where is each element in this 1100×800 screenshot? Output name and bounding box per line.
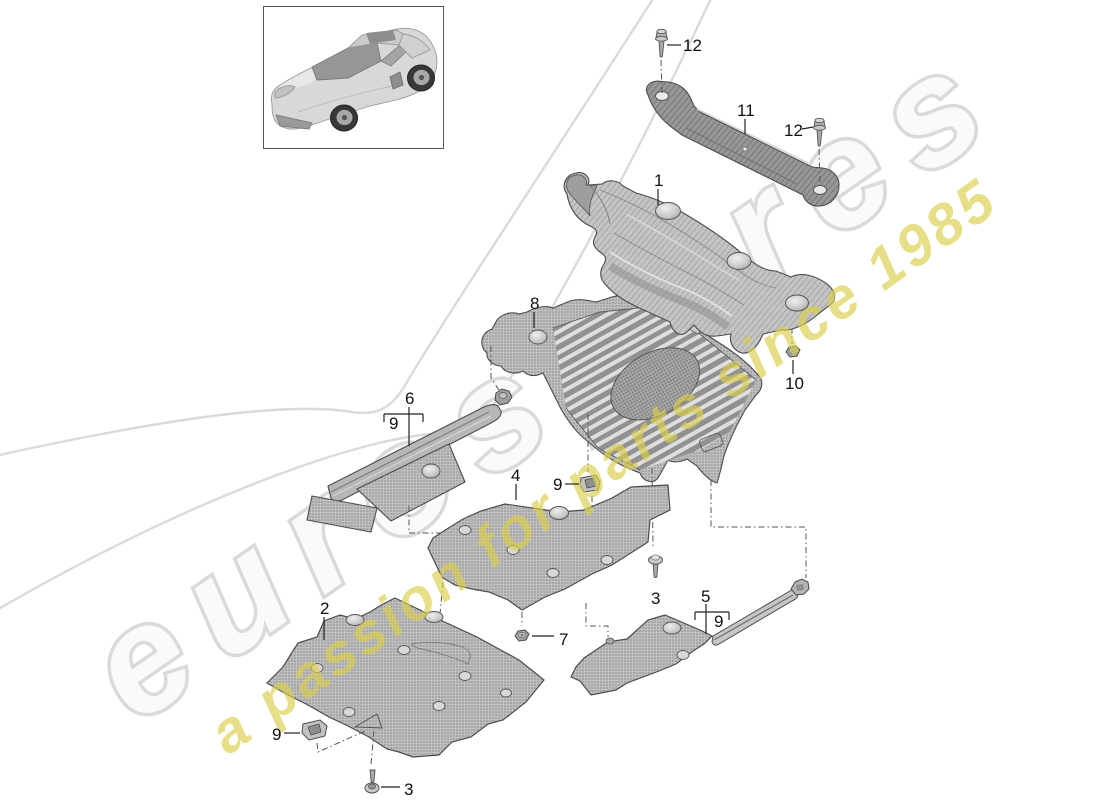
- svg-text:9: 9: [553, 475, 562, 494]
- svg-text:9: 9: [714, 612, 723, 631]
- svg-text:3: 3: [651, 589, 660, 608]
- svg-text:6: 6: [405, 389, 414, 408]
- svg-text:12: 12: [784, 121, 803, 140]
- svg-text:3: 3: [404, 780, 413, 799]
- svg-text:7: 7: [559, 630, 568, 649]
- svg-text:4: 4: [511, 466, 520, 485]
- svg-text:8: 8: [530, 294, 539, 313]
- svg-text:12: 12: [683, 36, 702, 55]
- svg-text:2: 2: [320, 599, 329, 618]
- svg-text:9: 9: [389, 414, 398, 433]
- svg-text:11: 11: [737, 101, 755, 120]
- svg-text:10: 10: [785, 374, 804, 393]
- svg-text:9: 9: [272, 725, 281, 744]
- svg-text:1: 1: [654, 171, 663, 190]
- svg-text:5: 5: [701, 587, 710, 606]
